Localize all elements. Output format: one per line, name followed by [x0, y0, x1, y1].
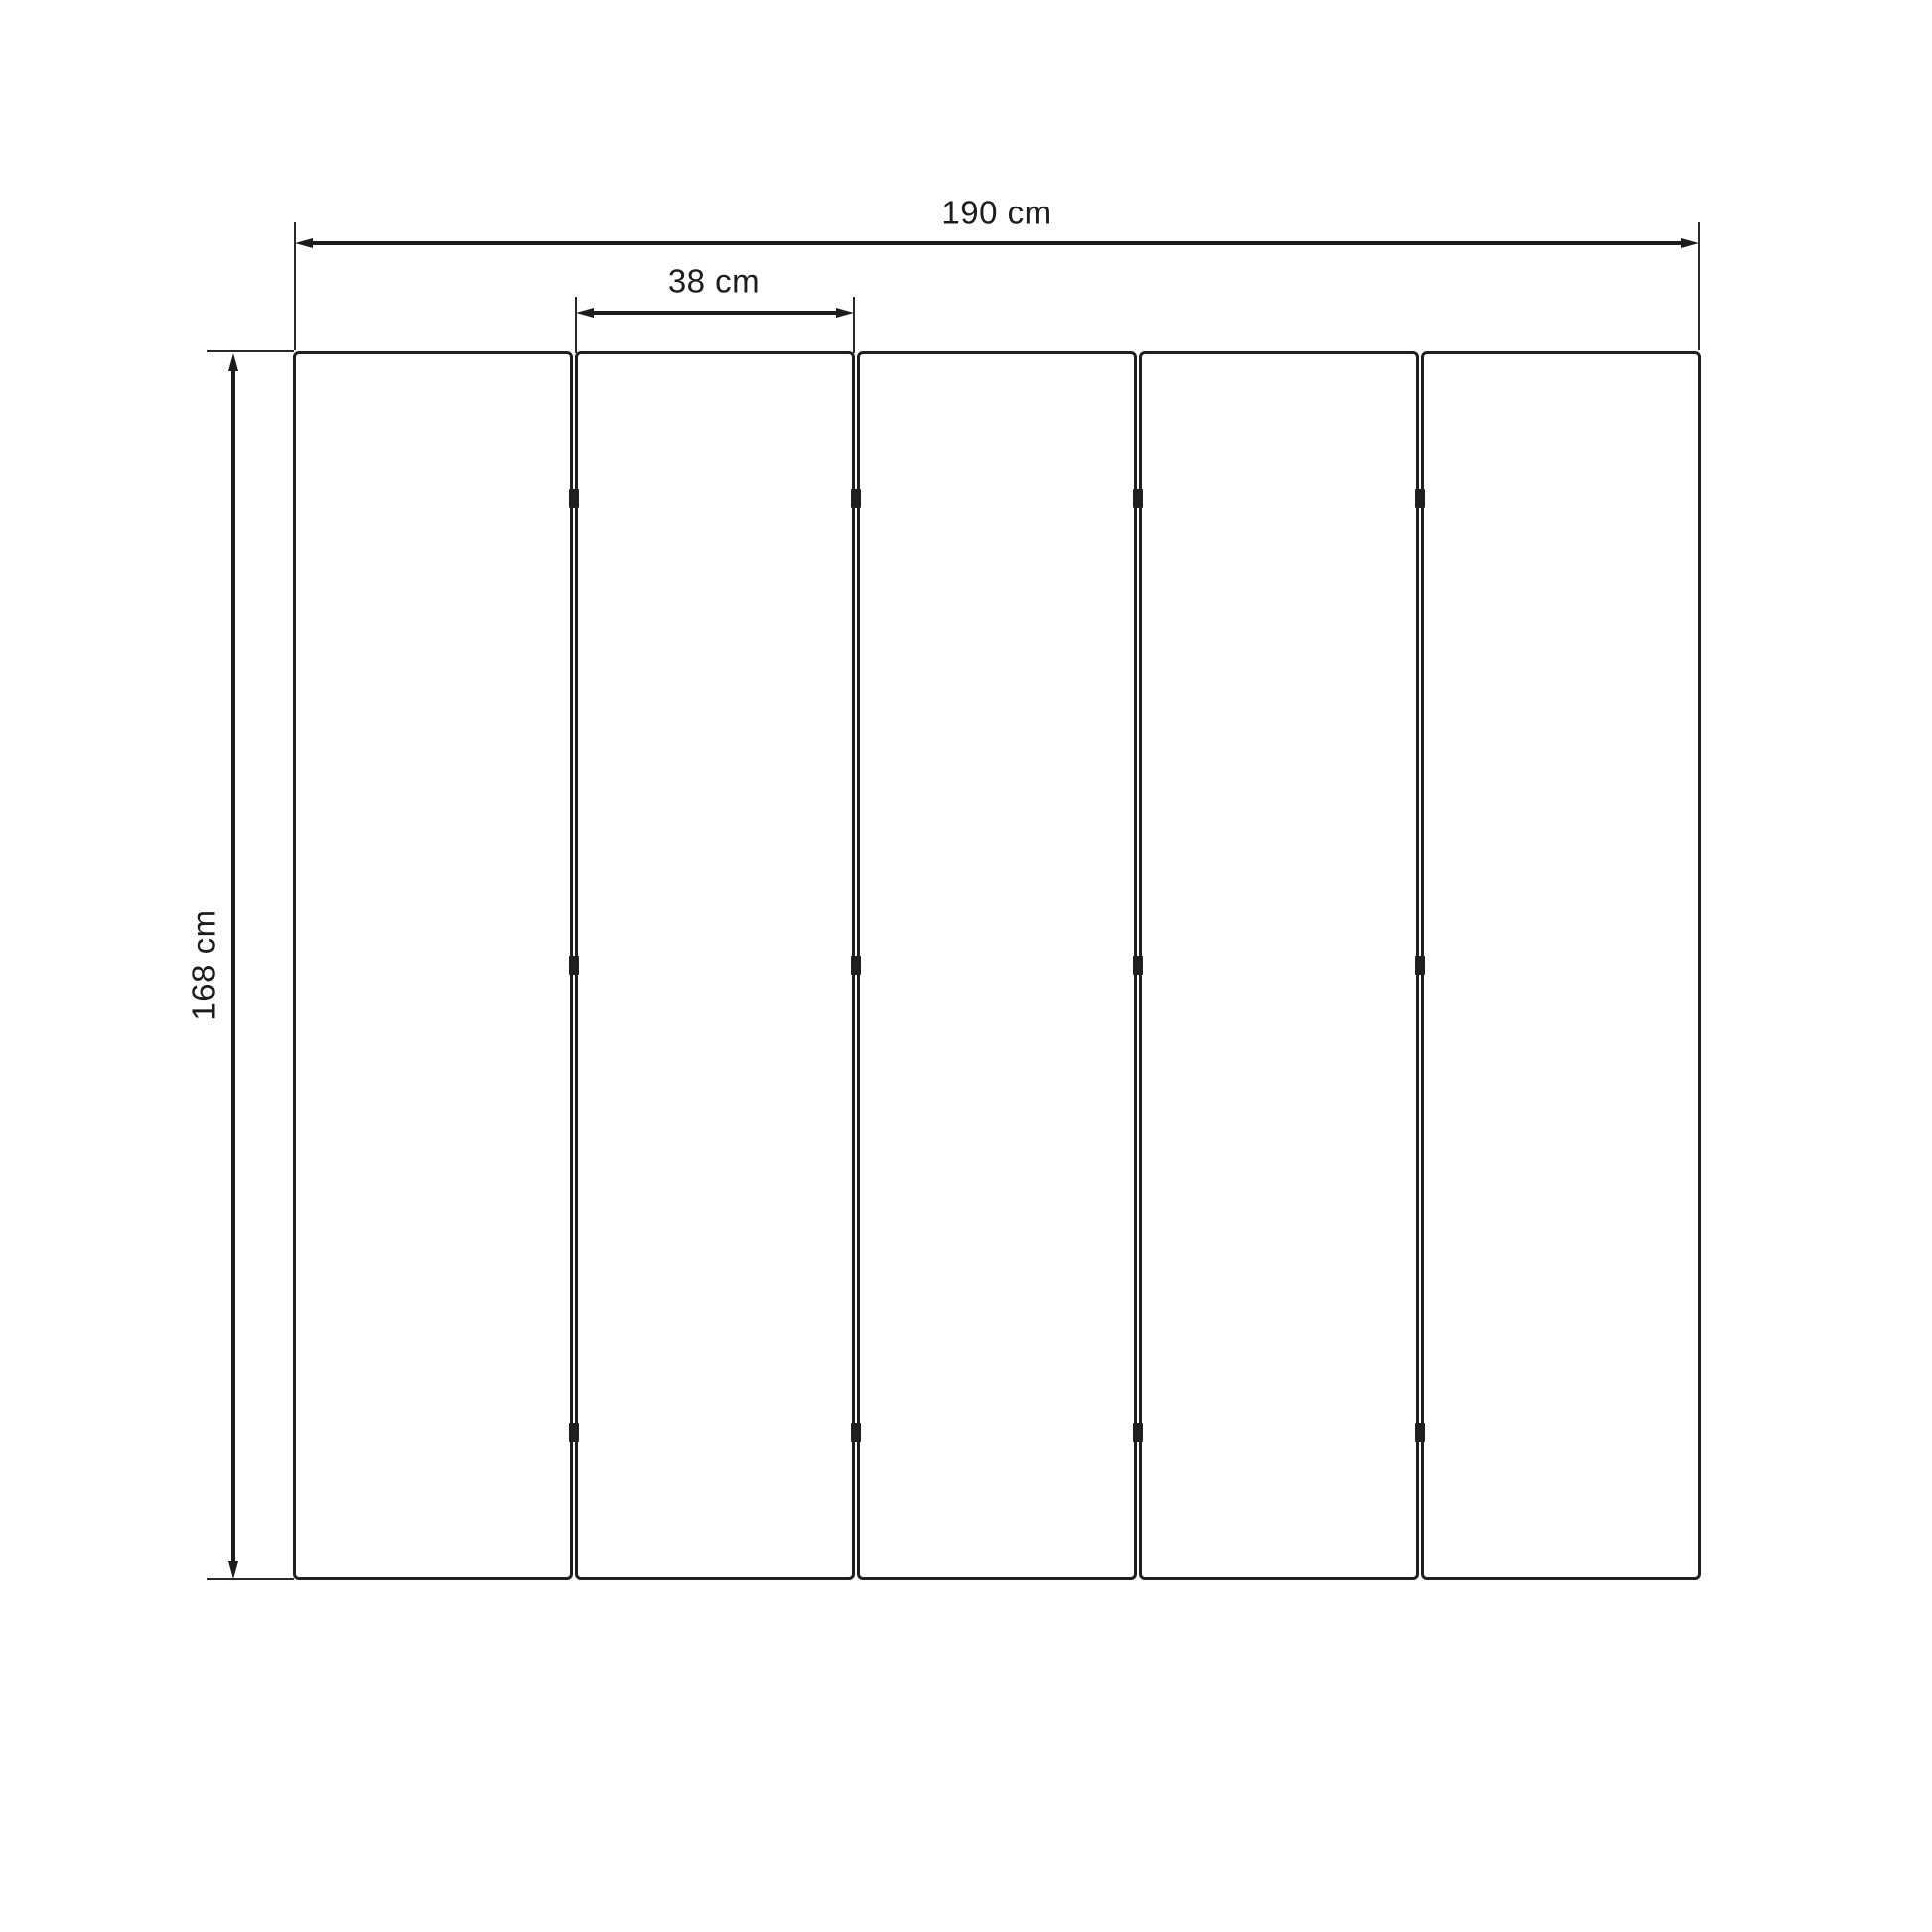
- hinge-mark: [569, 956, 579, 975]
- panel: [1139, 351, 1419, 1580]
- total-width-label: 190 cm: [941, 197, 1051, 229]
- panel: [1421, 351, 1701, 1580]
- hinge-mark: [1133, 489, 1143, 508]
- height-label: 168 cm: [188, 909, 220, 1020]
- arrow-up-icon: [228, 353, 238, 371]
- hinge-mark: [1133, 956, 1143, 975]
- hinge-mark: [569, 489, 579, 508]
- hinge-mark: [1415, 1423, 1425, 1442]
- hinge-mark: [851, 956, 861, 975]
- panel: [575, 351, 855, 1580]
- hinge-mark: [851, 489, 861, 508]
- arrow-down-icon: [228, 1561, 238, 1579]
- hinge-mark: [1415, 956, 1425, 975]
- arrow-left-icon: [576, 308, 594, 318]
- arrow-left-icon: [295, 238, 313, 248]
- technical-drawing-canvas: 190 cm 38 cm 168 cm: [0, 0, 1932, 1932]
- panels-row: [293, 351, 1701, 1580]
- panel: [857, 351, 1137, 1580]
- arrow-right-icon: [1681, 238, 1699, 248]
- hinge-mark: [1415, 489, 1425, 508]
- panel-width-label: 38 cm: [668, 265, 759, 298]
- hinge-mark: [1133, 1423, 1143, 1442]
- arrow-right-icon: [836, 308, 854, 318]
- panel: [293, 351, 573, 1580]
- hinge-mark: [851, 1423, 861, 1442]
- hinge-mark: [569, 1423, 579, 1442]
